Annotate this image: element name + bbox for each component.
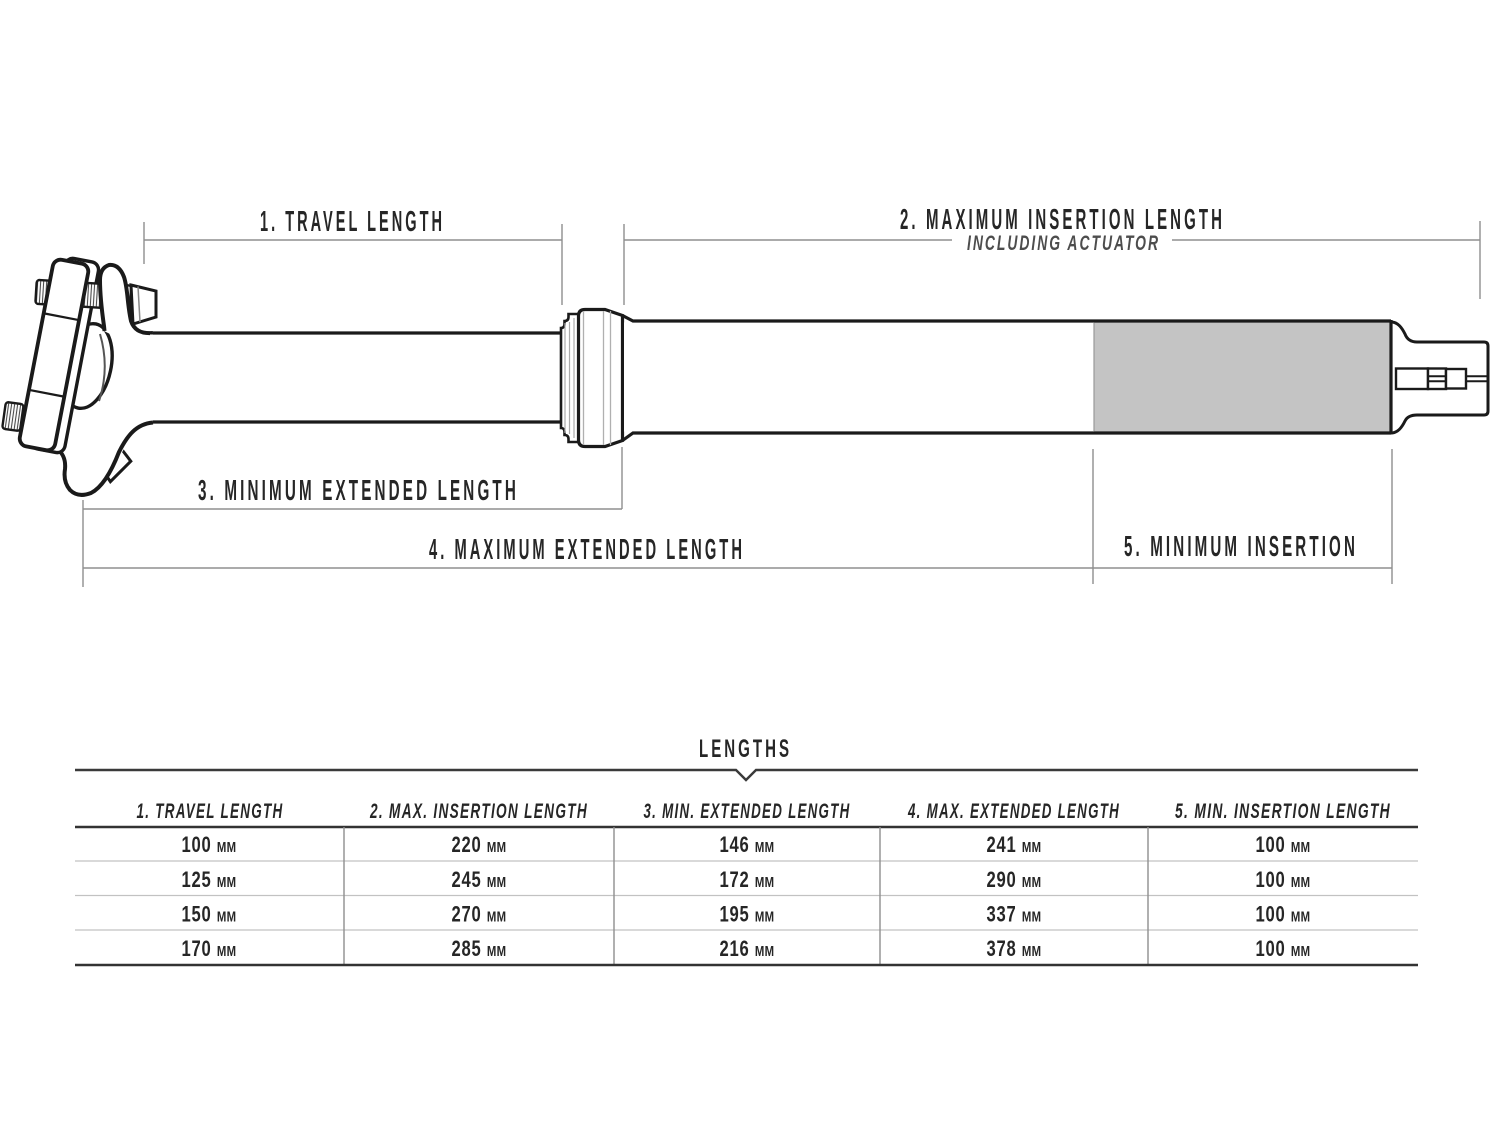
svg-text:1. TRAVEL LENGTH: 1. TRAVEL LENGTH xyxy=(137,800,284,823)
svg-text:5. MINIMUM INSERTION: 5. MINIMUM INSERTION xyxy=(1124,531,1358,563)
svg-text:LENGTHS: LENGTHS xyxy=(699,735,792,763)
svg-text:1. TRAVEL LENGTH: 1. TRAVEL LENGTH xyxy=(260,206,445,238)
svg-text:5. MIN. INSERTION LENGTH: 5. MIN. INSERTION LENGTH xyxy=(1175,800,1391,823)
svg-text:3. MIN. EXTENDED LENGTH: 3. MIN. EXTENDED LENGTH xyxy=(644,800,851,823)
svg-text:4. MAXIMUM EXTENDED LENGTH: 4. MAXIMUM EXTENDED LENGTH xyxy=(429,534,745,566)
svg-text:3. MINIMUM EXTENDED LENGTH: 3. MINIMUM EXTENDED LENGTH xyxy=(198,475,519,507)
svg-text:4. MAX. EXTENDED LENGTH: 4. MAX. EXTENDED LENGTH xyxy=(907,800,1120,823)
svg-text:INCLUDING ACTUATOR: INCLUDING ACTUATOR xyxy=(967,232,1160,255)
svg-text:2. MAX. INSERTION LENGTH: 2. MAX. INSERTION LENGTH xyxy=(369,800,588,823)
